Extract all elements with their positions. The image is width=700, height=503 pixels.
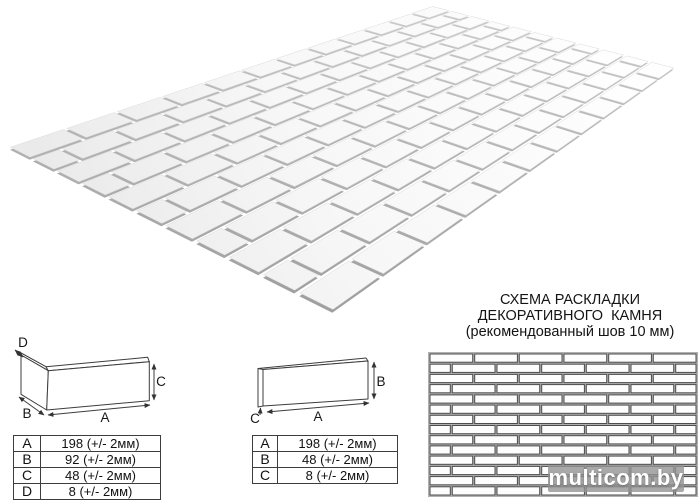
value-cell: 8 (+/- 2мм) (278, 468, 398, 484)
pattern-brick (475, 436, 518, 444)
pattern-brick (586, 446, 629, 454)
pattern-brick (452, 364, 495, 372)
pattern-brick (475, 415, 518, 423)
pattern-brick (497, 405, 540, 413)
pattern-brick (519, 395, 562, 403)
flat-piece-diagram: B A C (240, 335, 400, 435)
flat-dimensions-table: A 198 (+/- 2мм) B 48 (+/- 2мм) C 8 (+/- … (252, 435, 398, 484)
pattern-brick (542, 446, 585, 454)
pattern-brick (430, 487, 450, 495)
value-cell: 92 (+/- 2мм) (41, 452, 161, 468)
pattern-brick (564, 456, 607, 464)
pattern-brick (475, 354, 518, 362)
label-a: A (100, 410, 109, 425)
label-a: A (313, 409, 322, 424)
pattern-brick (430, 436, 473, 444)
pattern-brick (519, 415, 562, 423)
pattern-brick (653, 415, 696, 423)
title-line-2: ДЕКОРАТИВНОГО КАМНЯ (438, 308, 700, 324)
pattern-brick (631, 426, 674, 434)
label-c: C (250, 411, 260, 426)
pattern-brick (452, 487, 495, 495)
pattern-brick (631, 364, 674, 372)
pattern-brick (676, 385, 696, 393)
dim-cell: C (253, 468, 278, 484)
corner-piece-diagram: D B A C (10, 335, 185, 435)
layout-scheme-title: СХЕМА РАСКЛАДКИ ДЕКОРАТИВНОГО КАМНЯ (рек… (438, 292, 700, 340)
pattern-brick (586, 426, 629, 434)
dim-cell: B (14, 452, 41, 468)
pattern-brick (542, 364, 585, 372)
pattern-brick (542, 385, 585, 393)
pattern-brick (430, 374, 473, 382)
pattern-brick (430, 466, 450, 474)
pattern-brick (475, 477, 518, 485)
pattern-brick (564, 354, 607, 362)
pattern-brick (452, 466, 495, 474)
title-line-1: СХЕМА РАСКЛАДКИ (438, 292, 700, 308)
table-row: C 8 (+/- 2мм) (253, 468, 398, 484)
pattern-brick (586, 385, 629, 393)
value-cell: 198 (+/- 2мм) (41, 436, 161, 452)
table-row: B 92 (+/- 2мм) (14, 452, 161, 468)
watermark-text: multicom.by (548, 465, 683, 490)
label-d: D (18, 335, 28, 350)
table-row: D 8 (+/- 2мм) (14, 484, 161, 500)
dim-cell: A (253, 436, 278, 452)
value-cell: 48 (+/- 2мм) (278, 452, 398, 468)
pattern-brick (519, 354, 562, 362)
pattern-brick (609, 374, 652, 382)
pattern-brick (430, 456, 473, 464)
pattern-brick (430, 395, 473, 403)
pattern-brick (430, 415, 473, 423)
corner-dimensions-table: A 198 (+/- 2мм) B 92 (+/- 2мм) C 48 (+/-… (13, 435, 161, 500)
pattern-brick (430, 354, 473, 362)
dim-cell: C (14, 468, 41, 484)
pattern-brick (653, 456, 696, 464)
title-line-3: (рекомендованный шов 10 мм) (438, 324, 700, 340)
pattern-brick (653, 354, 696, 362)
pattern-brick (586, 364, 629, 372)
pattern-brick (475, 374, 518, 382)
pattern-brick (475, 456, 518, 464)
flat-left-edge (258, 369, 263, 408)
pattern-brick (497, 426, 540, 434)
pattern-brick (564, 395, 607, 403)
pattern-brick (631, 385, 674, 393)
pattern-brick (676, 364, 696, 372)
pattern-brick (497, 385, 540, 393)
corner-piece-drawing (19, 352, 149, 410)
pattern-brick (430, 405, 450, 413)
pattern-brick (653, 436, 696, 444)
pattern-brick (609, 456, 652, 464)
pattern-brick (564, 436, 607, 444)
pattern-brick (542, 426, 585, 434)
pattern-brick (452, 405, 495, 413)
tile-panel-3d-view (0, 0, 700, 330)
pattern-brick (631, 405, 674, 413)
pattern-brick (475, 395, 518, 403)
pattern-brick (452, 426, 495, 434)
watermark: multicom.by (548, 465, 684, 492)
pattern-brick (676, 446, 696, 454)
pattern-brick (497, 487, 540, 495)
pattern-brick (653, 395, 696, 403)
pattern-brick (497, 364, 540, 372)
pattern-brick (542, 405, 585, 413)
table-row: A 198 (+/- 2мм) (253, 436, 398, 452)
pattern-brick (653, 374, 696, 382)
flat-front-face (263, 361, 368, 406)
label-b: B (22, 406, 31, 421)
dim-leader-c (260, 408, 261, 415)
label-c: C (156, 374, 166, 389)
table-row: A 198 (+/- 2мм) (14, 436, 161, 452)
value-cell: 48 (+/- 2мм) (41, 468, 161, 484)
pattern-brick (609, 354, 652, 362)
pattern-brick (564, 374, 607, 382)
pattern-brick (519, 436, 562, 444)
table-row: C 48 (+/- 2мм) (14, 468, 161, 484)
pattern-brick (430, 385, 450, 393)
value-cell: 198 (+/- 2мм) (278, 436, 398, 452)
tile-panel-bricks (10, 7, 674, 313)
pattern-brick (430, 477, 473, 485)
pattern-brick (676, 426, 696, 434)
pattern-brick (609, 436, 652, 444)
pattern-brick (497, 446, 540, 454)
pattern-brick (519, 374, 562, 382)
dim-cell: B (253, 452, 278, 468)
pattern-brick (609, 395, 652, 403)
dim-cell: A (14, 436, 41, 452)
label-b: B (376, 374, 385, 389)
pattern-brick (564, 415, 607, 423)
pattern-brick (430, 364, 450, 372)
pattern-brick (676, 405, 696, 413)
pattern-brick (631, 446, 674, 454)
flat-piece-drawing (258, 358, 368, 407)
pattern-brick (430, 426, 450, 434)
table-row: B 48 (+/- 2мм) (253, 452, 398, 468)
dim-cell: D (14, 484, 41, 500)
pattern-brick (609, 415, 652, 423)
value-cell: 8 (+/- 2мм) (41, 484, 161, 500)
pattern-brick (519, 456, 562, 464)
page-background: { "title_block": { "line1": "СХЕМА РАСКЛ… (0, 0, 700, 503)
pattern-brick (586, 405, 629, 413)
pattern-brick (497, 466, 540, 474)
pattern-brick (452, 385, 495, 393)
pattern-brick (430, 446, 450, 454)
pattern-brick (452, 446, 495, 454)
